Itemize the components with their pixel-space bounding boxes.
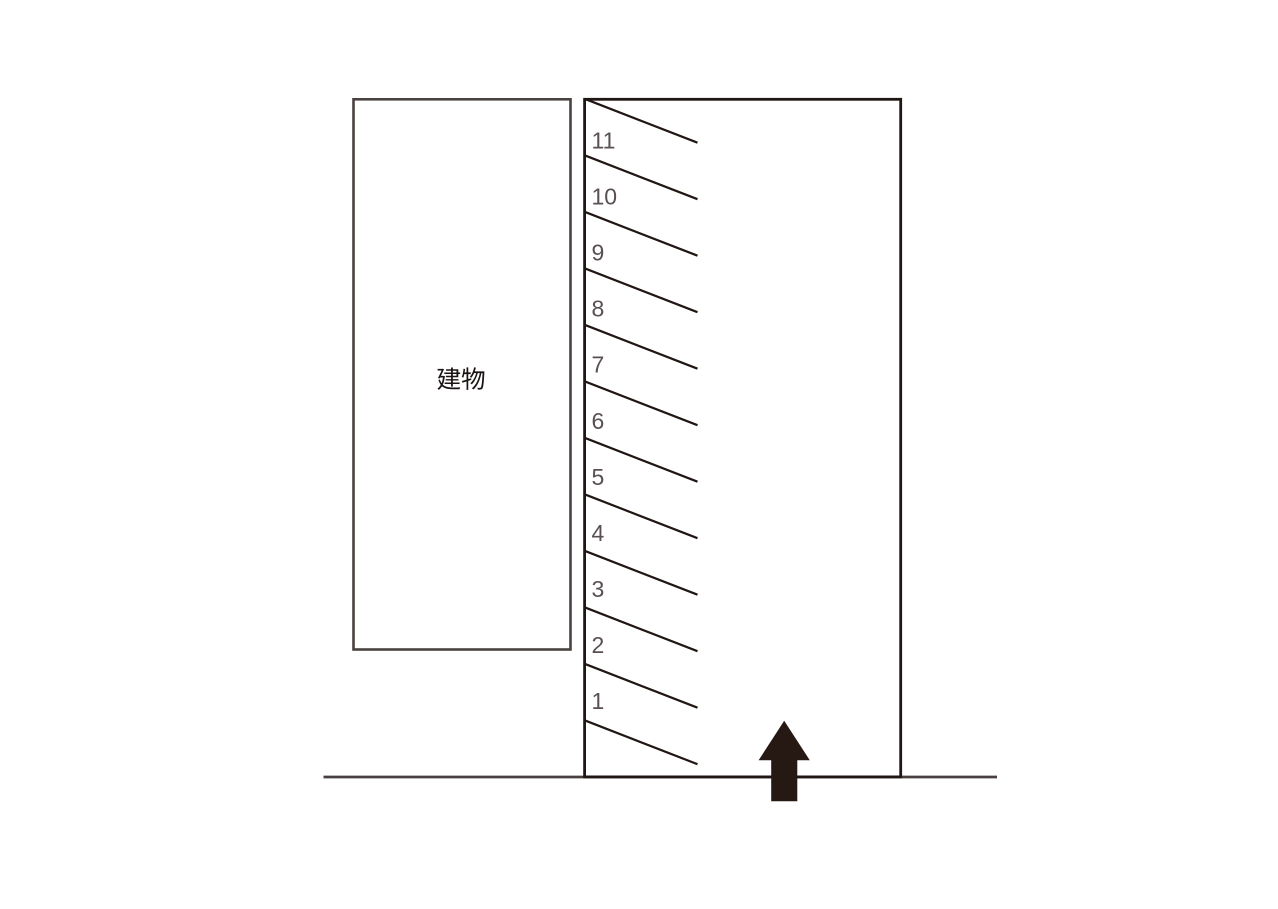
svg-text:10: 10: [592, 184, 618, 210]
svg-text:8: 8: [592, 296, 605, 322]
svg-text:1: 1: [592, 688, 605, 714]
svg-text:6: 6: [592, 408, 605, 434]
svg-text:2: 2: [592, 632, 605, 658]
svg-text:5: 5: [592, 464, 605, 490]
svg-text:7: 7: [592, 352, 605, 378]
svg-text:11: 11: [592, 128, 616, 154]
svg-text:4: 4: [592, 520, 605, 546]
svg-text:9: 9: [592, 240, 605, 266]
svg-text:3: 3: [592, 576, 605, 602]
